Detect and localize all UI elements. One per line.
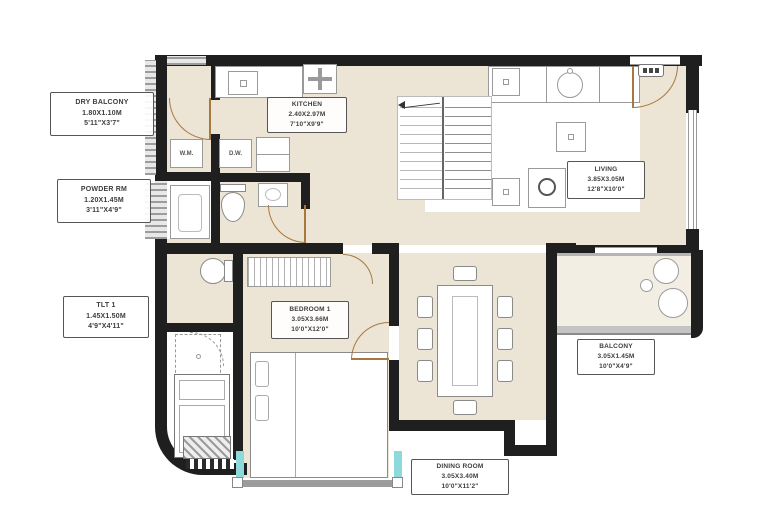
dry-balcony-label: DRY BALCONY 1.80X1.10M 5'11"X3'7"	[50, 92, 154, 136]
wc2-tank	[224, 260, 233, 282]
wall-wc-left	[211, 181, 220, 243]
kitchen-counter-left	[215, 66, 303, 98]
column-dot	[503, 189, 509, 195]
living-feet: 12'8"X10'0"	[587, 185, 624, 195]
wall-dining-right	[546, 250, 557, 456]
dining-meters: 3.05X3.40M	[441, 472, 478, 482]
balcony-table	[658, 288, 688, 318]
wall-left-upper	[155, 55, 167, 177]
powder-name: POWDER RM	[81, 185, 127, 196]
dining-feet: 10'0"X11'2"	[441, 482, 478, 492]
column-marker	[492, 68, 520, 96]
balcony-planter-small	[640, 279, 653, 292]
bedroom-feet: 10'0"X12'0"	[291, 325, 328, 335]
balcony-feet: 10'0"X4'9"	[599, 362, 633, 372]
wash-console	[528, 168, 566, 208]
wc1-sink-bowl	[265, 188, 281, 201]
wall-bed-dining-b	[389, 360, 399, 422]
dresser-top	[179, 380, 225, 400]
pillow-2	[255, 395, 269, 421]
dishwasher: D.W.	[219, 139, 252, 168]
wall-tlt-divider	[167, 323, 233, 332]
column-marker	[492, 178, 520, 206]
bed	[250, 352, 388, 478]
kitchen-name: KITCHEN	[292, 100, 322, 110]
dining-name: DINING ROOM	[437, 462, 484, 472]
wall-left-column	[233, 254, 243, 460]
wall-mid-a	[155, 243, 247, 254]
fridge	[256, 137, 290, 172]
floor-plan: W.M. D.W.	[0, 0, 758, 526]
dining-chair	[417, 296, 433, 318]
balcony-name: BALCONY	[599, 342, 633, 352]
wall-dining-step-h	[504, 445, 557, 456]
balcony-meters: 3.05X1.45M	[597, 352, 634, 362]
wall-top	[158, 55, 702, 66]
stove-box	[303, 64, 337, 94]
dry-balcony-feet: 5'11"X3'7"	[84, 119, 120, 130]
sink-basin	[557, 72, 583, 98]
dining-chair	[497, 296, 513, 318]
dining-chair	[497, 328, 513, 350]
meter-dot-icon	[643, 68, 647, 73]
wc1-tank	[220, 184, 246, 192]
bay-post-right	[392, 477, 403, 488]
toilet1-name: TLT 1	[96, 301, 115, 312]
toilet1-meters: 1.45X1.50M	[86, 312, 126, 323]
wall-wc-top	[211, 173, 310, 182]
bedroom-meters: 3.05X3.66M	[291, 315, 328, 325]
bedroom-name: BEDROOM 1	[289, 305, 330, 315]
fridge-line	[257, 154, 289, 155]
wall-balcony-right	[691, 250, 703, 338]
powder-basin	[178, 194, 202, 232]
wall-right-top	[686, 55, 699, 113]
dining-chair	[453, 400, 477, 415]
toilet1-feet: 4'9"X4'11"	[88, 322, 124, 333]
bay-sill	[243, 478, 396, 487]
kitchen-label: KITCHEN 2.40X2.97M 7'10"X9'9"	[267, 97, 347, 133]
bay-post-left	[232, 477, 243, 488]
wall-mid-c	[372, 243, 399, 254]
balcony-railing	[557, 326, 691, 335]
living-window-glassline	[693, 110, 694, 232]
wall-dining-bottom	[389, 420, 515, 431]
wardrobe	[247, 257, 331, 287]
dining-table-runner	[452, 296, 478, 386]
top-window	[164, 56, 206, 65]
stair-flight-lower	[445, 99, 491, 197]
living-label: LIVING 3.85X3.05M 12'8"X10'0"	[567, 161, 645, 199]
wc1-sink	[258, 183, 288, 207]
staircase	[397, 96, 492, 200]
hob-box	[228, 71, 258, 95]
counter-divider-1	[546, 67, 547, 102]
wall-left-mid	[155, 239, 167, 395]
dining-chair	[497, 360, 513, 382]
blanket-fold	[295, 353, 296, 477]
powder-vanity	[170, 185, 210, 239]
stair-stringer	[442, 97, 444, 199]
meter-dot-icon	[649, 68, 653, 73]
powder-meters: 1.20X1.45M	[84, 196, 124, 207]
kitchen-feet: 7'10"X9'9"	[290, 120, 324, 130]
powder-label: POWDER RM 1.20X1.45M 3'11"X4'9"	[57, 179, 151, 223]
dining-chair	[417, 360, 433, 382]
toilet1-label: TLT 1 1.45X1.50M 4'9"X4'11"	[63, 296, 149, 338]
powder-window	[155, 181, 167, 239]
dining-label: DINING ROOM 3.05X3.40M 10'0"X11'2"	[411, 459, 509, 495]
washing-machine: W.M.	[170, 139, 203, 168]
kitchen-meters: 2.40X2.97M	[288, 110, 325, 120]
sink-tap	[567, 68, 573, 74]
hob-knob	[240, 80, 247, 87]
column-marker	[556, 122, 586, 152]
powder-feet: 3'11"X4'9"	[86, 206, 122, 217]
shaft-grille	[186, 459, 234, 469]
stair-flight-upper	[400, 107, 442, 197]
stair-arrow-icon	[398, 101, 405, 109]
stove-cross-h	[308, 77, 332, 81]
meter-dot-icon	[655, 68, 659, 73]
dry-balcony-name: DRY BALCONY	[75, 98, 128, 109]
living-meters: 3.85X3.05M	[587, 175, 624, 185]
balcony-label: BALCONY 3.05X1.45M 10'0"X4'9"	[577, 339, 655, 375]
counter-divider-2	[599, 67, 600, 102]
wall-foyer-powder	[155, 172, 217, 181]
bedroom-label: BEDROOM 1 3.05X3.66M 10'0"X12'0"	[271, 301, 349, 339]
wall-bed-dining-a	[389, 254, 399, 326]
wall-mid-b	[247, 243, 343, 254]
meter-badge	[638, 64, 664, 77]
dining-table	[437, 285, 493, 397]
living-name: LIVING	[595, 165, 618, 175]
entry-door-leaf	[632, 66, 634, 108]
column-dot	[568, 134, 574, 140]
balcony-threshold	[557, 253, 691, 256]
wc-door-leaf	[304, 205, 306, 243]
bedroom-door-leaf	[351, 358, 389, 360]
foyer-door-leaf	[209, 98, 211, 140]
column-dot	[503, 79, 509, 85]
dining-chair	[417, 328, 433, 350]
wc2-bowl	[200, 258, 226, 284]
dining-chair	[453, 266, 477, 281]
living-window	[688, 110, 697, 232]
pillow-1	[255, 361, 269, 387]
dry-balcony-meters: 1.80X1.10M	[82, 109, 122, 120]
service-shaft	[183, 436, 231, 459]
balcony-planter-large	[653, 258, 679, 284]
console-basin	[538, 178, 556, 196]
